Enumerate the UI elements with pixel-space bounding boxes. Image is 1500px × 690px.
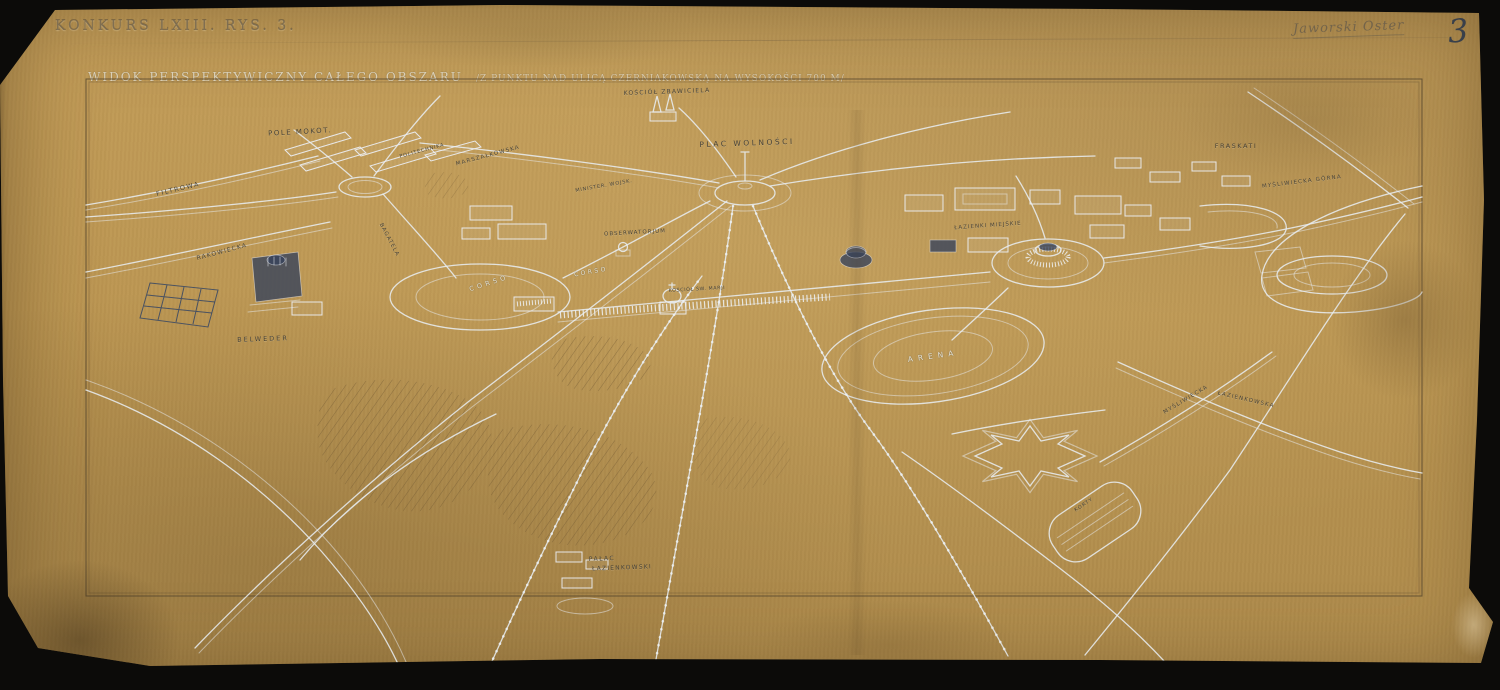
map-label: KORTY <box>1074 497 1095 514</box>
map-label: PLAC WOLNOŚCI <box>699 137 794 149</box>
map-label: RAKOWIECKA <box>196 242 248 262</box>
map-label: CORSO <box>468 273 509 293</box>
map-label: MYŚLIWIECKA GÓRNA <box>1262 174 1343 190</box>
map-label: MARSZAŁKOWSKA <box>455 145 520 168</box>
map-label: ŁAZIENKI MIEJSKIE <box>954 221 1022 232</box>
map-label: ŁAZIENKOWSKA <box>1217 391 1275 410</box>
map-labels-layer: POLE MOKOT.FILTROWAKOŚCIÓŁ ZBAWICIELAPLA… <box>0 0 1500 690</box>
map-label: OBSERWATORJUM <box>604 228 666 237</box>
map-label: CORSO <box>574 266 609 279</box>
map-label: POLITECHNIKA <box>399 142 445 160</box>
scan-backdrop: KONKURS LXIII. RYS. 3. Jaworski Oster 3 … <box>0 0 1500 690</box>
map-label: PAŁAC <box>589 555 616 563</box>
paper-crease <box>848 110 866 655</box>
map-label: MINISTER. WOJSK. <box>575 178 633 194</box>
map-label: KOŚCIÓŁ ZBAWICIELA <box>624 87 711 97</box>
map-label: FILTROWA <box>155 180 200 198</box>
map-label: ARENA <box>907 348 959 364</box>
map-label: POLE MOKOT. <box>268 126 332 137</box>
map-label: FRASKATI <box>1215 142 1258 150</box>
map-label: ŁAZIENKOWSKI <box>592 563 652 572</box>
map-label: MYŚLIWIECKA <box>1163 384 1210 415</box>
map-label: KOŚCIÓŁ ŚW. MARJI <box>669 286 726 294</box>
map-label: BAGATELA <box>378 222 401 257</box>
map-label: BELWEDER <box>237 334 289 344</box>
paper-sheet: KONKURS LXIII. RYS. 3. Jaworski Oster 3 … <box>0 0 1500 690</box>
